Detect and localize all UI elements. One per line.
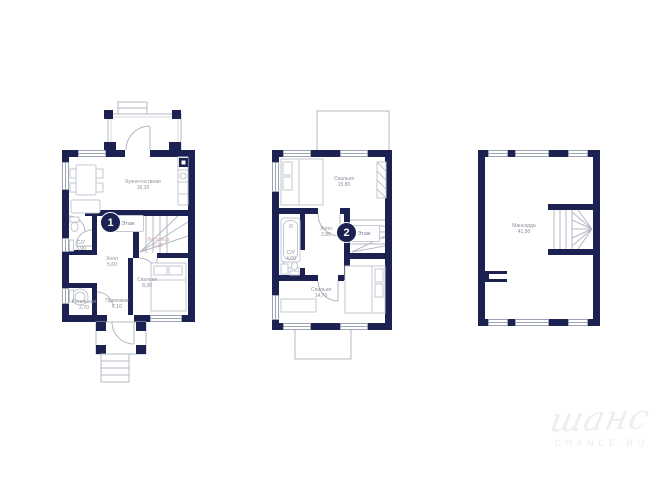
roof-outline-top (317, 111, 389, 150)
room-label-mansard: Мансарда 41,50 (512, 223, 535, 236)
boiler-marker-icon (179, 158, 188, 167)
room-area: 3,80 (320, 232, 332, 238)
room-area: 8,30 (137, 283, 157, 289)
floor-badge-number: 1 (100, 212, 121, 233)
room-area: 41,50 (512, 229, 535, 235)
bed (345, 266, 385, 313)
room-label-bedroom-f2-bottom: Спальня 14,70 (311, 287, 331, 300)
room-label-kitchen-living: Кухня-гостиная 16,10 (125, 179, 160, 192)
watermark-logo: шанс (532, 400, 668, 438)
entry-porch (96, 322, 146, 382)
radiator (70, 240, 74, 251)
room-area: 5,60 (106, 262, 118, 268)
room-label-bathroom-f1: С/У 3,90 (76, 240, 86, 253)
room-area: 16,10 (125, 185, 160, 191)
sink (281, 264, 288, 274)
room-label-boiler-room: Котельная 2,70 (72, 299, 96, 312)
roof-outline-bottom (295, 330, 351, 359)
room-label-hall-f1: Холл 5,60 (106, 256, 118, 269)
floor-number: 2 (343, 227, 349, 239)
room-label-hall-f2: Холл 3,80 (320, 226, 332, 239)
wardrobe (377, 162, 386, 198)
room-label-stairs-f1: Лестница 5,10 (147, 237, 169, 250)
room-area: 7,10 (105, 304, 128, 310)
floor-number: 1 (107, 217, 113, 229)
porch-posts (96, 322, 146, 354)
wall-stub-opening (489, 274, 507, 279)
floor3-plan (478, 150, 600, 326)
cabinet (281, 299, 316, 312)
watermark: шанс CHANCE.RU (536, 402, 664, 448)
room-area: 3,90 (76, 246, 86, 252)
room-label-bedroom-f2-top: Спальня 15,80 (334, 176, 354, 189)
terrace-posts (104, 110, 181, 153)
floor1-badge: Этаж 1 (100, 212, 152, 234)
room-area: 5,10 (147, 243, 169, 249)
floor-badge-number: 2 (336, 222, 357, 243)
room-area: 14,70 (311, 293, 331, 299)
floor2-badge: Этаж 2 (336, 222, 388, 244)
entry-steps (101, 354, 129, 382)
room-label-bathroom-f2: С/У 4,60 (286, 250, 296, 263)
room-area: 4,60 (286, 256, 296, 262)
room-area: 15,80 (334, 182, 354, 188)
room-label-entry-hall: Прихожая 7,10 (105, 298, 128, 311)
room-label-bedroom-f1: Спальня 8,30 (137, 277, 157, 290)
room-area: 2,70 (72, 305, 96, 311)
toilet (70, 217, 79, 232)
floor-plan-sheet: Кухня-гостиная 16,10 С/У 3,90 Холл 5,60 … (0, 0, 670, 489)
floor-badge-label: Этаж (357, 231, 370, 237)
sofa (71, 200, 100, 213)
floor-badge-label: Этаж (121, 221, 134, 227)
bed (281, 159, 323, 205)
